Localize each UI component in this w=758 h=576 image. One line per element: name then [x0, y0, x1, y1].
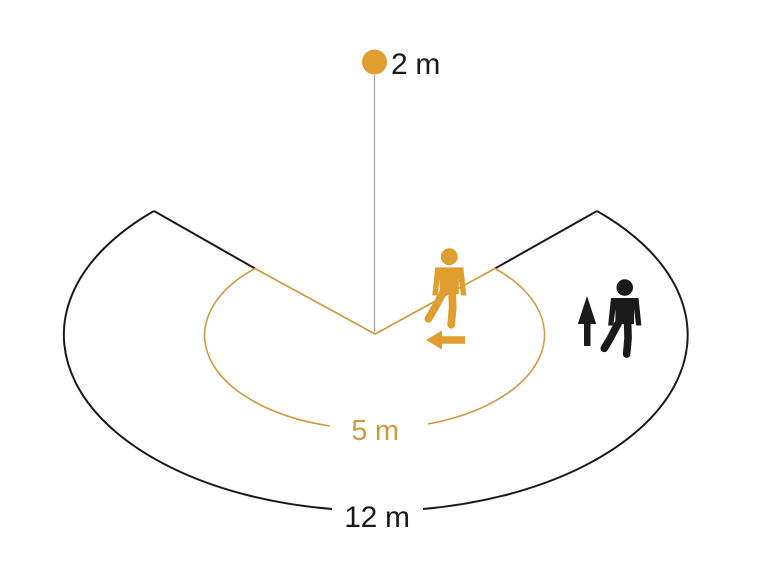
- outer-range-arc-left: [64, 211, 332, 509]
- inner-range-arc-left: [205, 269, 330, 427]
- left-arrow-icon: [426, 331, 465, 350]
- outer-range-edge-left: [154, 211, 255, 269]
- coverage-diagram-canvas: 2 m 12 m 5 m: [0, 0, 758, 576]
- mounting-height-label: 2 m: [391, 48, 440, 81]
- outer-range-arc-right: [423, 211, 688, 509]
- up-arrow-icon: [578, 296, 596, 346]
- tangential-movement-group: [426, 248, 466, 349]
- sensor-dot-icon: [362, 50, 387, 75]
- outer-radius-label: 12 m: [344, 501, 410, 534]
- walking-person-icon: [428, 248, 466, 324]
- outer-range-edge-right: [495, 211, 597, 269]
- walking-person-icon: [604, 279, 641, 354]
- inner-radius-label: 5 m: [351, 415, 398, 447]
- radial-movement-group: [578, 279, 642, 354]
- motion-detector-coverage-diagram: 2 m 12 m 5 m: [0, 0, 758, 576]
